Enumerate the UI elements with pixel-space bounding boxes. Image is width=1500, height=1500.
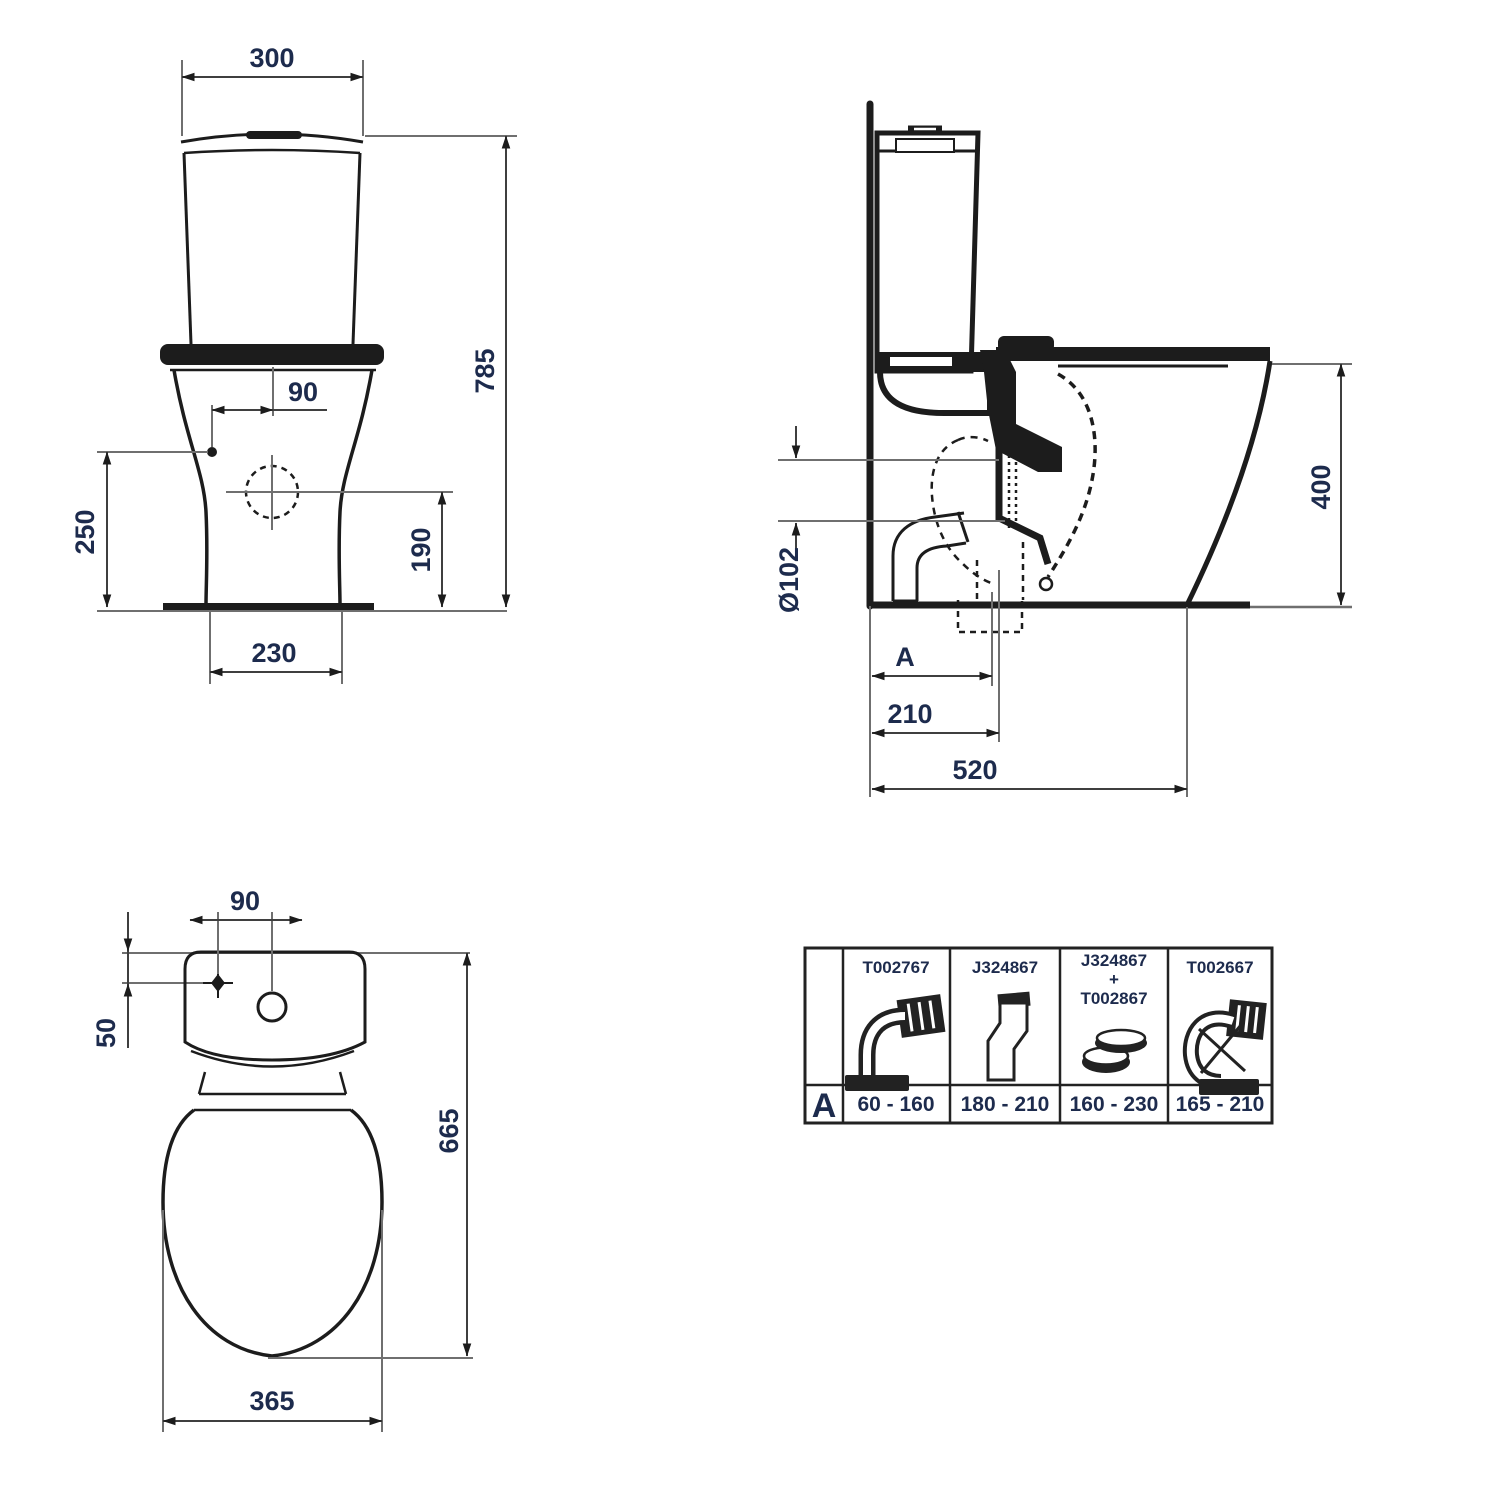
inlet-point-dot — [207, 447, 217, 457]
cistern-lid-slot — [896, 139, 954, 152]
cistern-lid-bottom — [184, 150, 360, 153]
dim-plan-total-length: 665 — [434, 1108, 464, 1153]
table-code-3a: J324867 — [1081, 951, 1147, 970]
seat-buffer-detail — [1040, 578, 1052, 590]
dim-front-inlet-offset: 90 — [288, 377, 318, 407]
dim-front-inlet-height: 250 — [70, 509, 100, 554]
dim-front-hole-height: 190 — [406, 527, 436, 572]
dim-front-total-height: 785 — [470, 348, 500, 393]
connector-table: A T002767 60 - 160 J324867 180 - 210 J32… — [805, 948, 1272, 1125]
bowl-front-profile — [1187, 361, 1270, 605]
inlet-hole-circle — [258, 993, 286, 1021]
seat-hinge — [998, 336, 1054, 352]
fixing-point-marker — [211, 974, 225, 992]
dim-plan-bowl-width: 365 — [249, 1386, 294, 1416]
cistern-plan-outline — [185, 952, 365, 1060]
table-range-2: 180 - 210 — [961, 1093, 1050, 1116]
dim-side-rim-height: 400 — [1306, 464, 1336, 509]
side-section-view: Ø102 A 210 520 400 — [774, 104, 1352, 797]
table-range-3: 160 - 230 — [1070, 1093, 1159, 1116]
table-code-4: T002667 — [1186, 958, 1253, 977]
dim-side-outlet-diameter: Ø102 — [774, 547, 804, 613]
cistern-right-edge — [353, 153, 360, 344]
table-code-3b: T002867 — [1080, 989, 1147, 1008]
trap-dashed-outline — [932, 440, 991, 583]
dim-side-total-depth: 520 — [952, 755, 997, 785]
front-elevation-view: 300 785 90 250 190 230 — [70, 43, 517, 684]
cistern-left-edge — [184, 153, 191, 344]
bowl-plan-outline — [163, 1110, 382, 1356]
technical-drawing-sheet: 300 785 90 250 190 230 — [0, 0, 1500, 1500]
outlet-elbow-outer — [893, 513, 964, 601]
dim-plan-hole-spacing: 90 — [230, 886, 260, 916]
bowl-interior-dashed — [1048, 374, 1095, 577]
table-code-3-plus: + — [1109, 970, 1119, 989]
cistern-side-outline — [877, 133, 978, 371]
pedestal-right-edge — [339, 370, 372, 605]
table-row-label: A — [812, 1087, 837, 1125]
table-range-4: 165 - 210 — [1176, 1093, 1265, 1116]
outlet-elbow-inner — [917, 543, 966, 601]
dim-side-outlet-distance: 210 — [887, 699, 932, 729]
dim-front-base-width: 230 — [251, 638, 296, 668]
toilet-dimension-drawing: 300 785 90 250 190 230 — [0, 0, 1500, 1500]
dim-plan-hole-offset: 50 — [91, 1018, 121, 1048]
table-code-1: T002767 — [862, 958, 929, 977]
flush-channel — [980, 350, 1062, 472]
plan-view: 90 50 665 365 — [91, 886, 473, 1432]
pedestal-left-edge — [174, 370, 207, 605]
seat-band — [160, 344, 384, 365]
cistern-bracket — [880, 372, 990, 413]
dim-side-adjust-label: A — [895, 642, 915, 672]
table-code-2: J324867 — [972, 958, 1038, 977]
table-range-1: 60 - 160 — [857, 1093, 934, 1116]
dim-front-cistern-width: 300 — [249, 43, 294, 73]
